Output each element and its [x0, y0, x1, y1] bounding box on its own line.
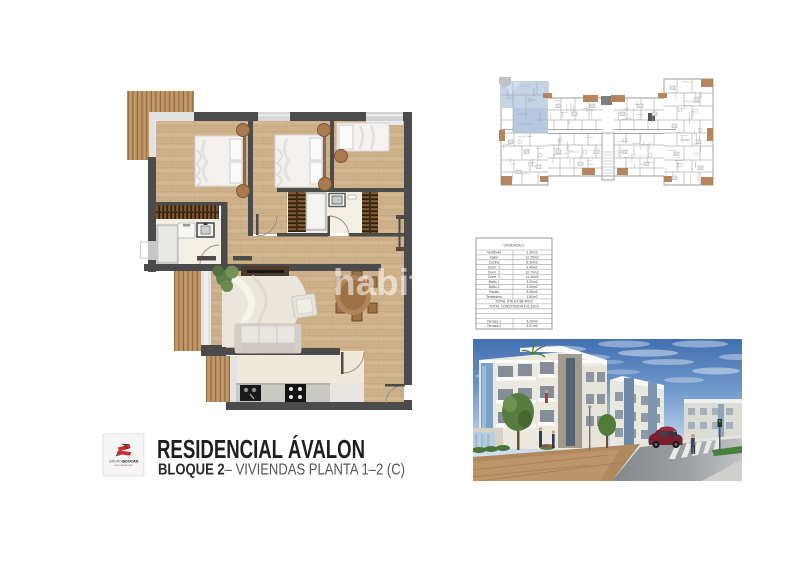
- svg-text:RESIDENCIAL ÁVALON: RESIDENCIAL ÁVALON: [157, 435, 365, 464]
- svg-text:BLOQUE 2– VIVIENDAS PLANTA 1–2: BLOQUE 2– VIVIENDAS PLANTA 1–2 (C): [158, 462, 405, 479]
- svg-text:GRUPO INMOBILIARIO: GRUPO INMOBILIARIO: [114, 464, 134, 467]
- svg-text:GRUPOSIDOCAN: GRUPOSIDOCAN: [109, 459, 139, 463]
